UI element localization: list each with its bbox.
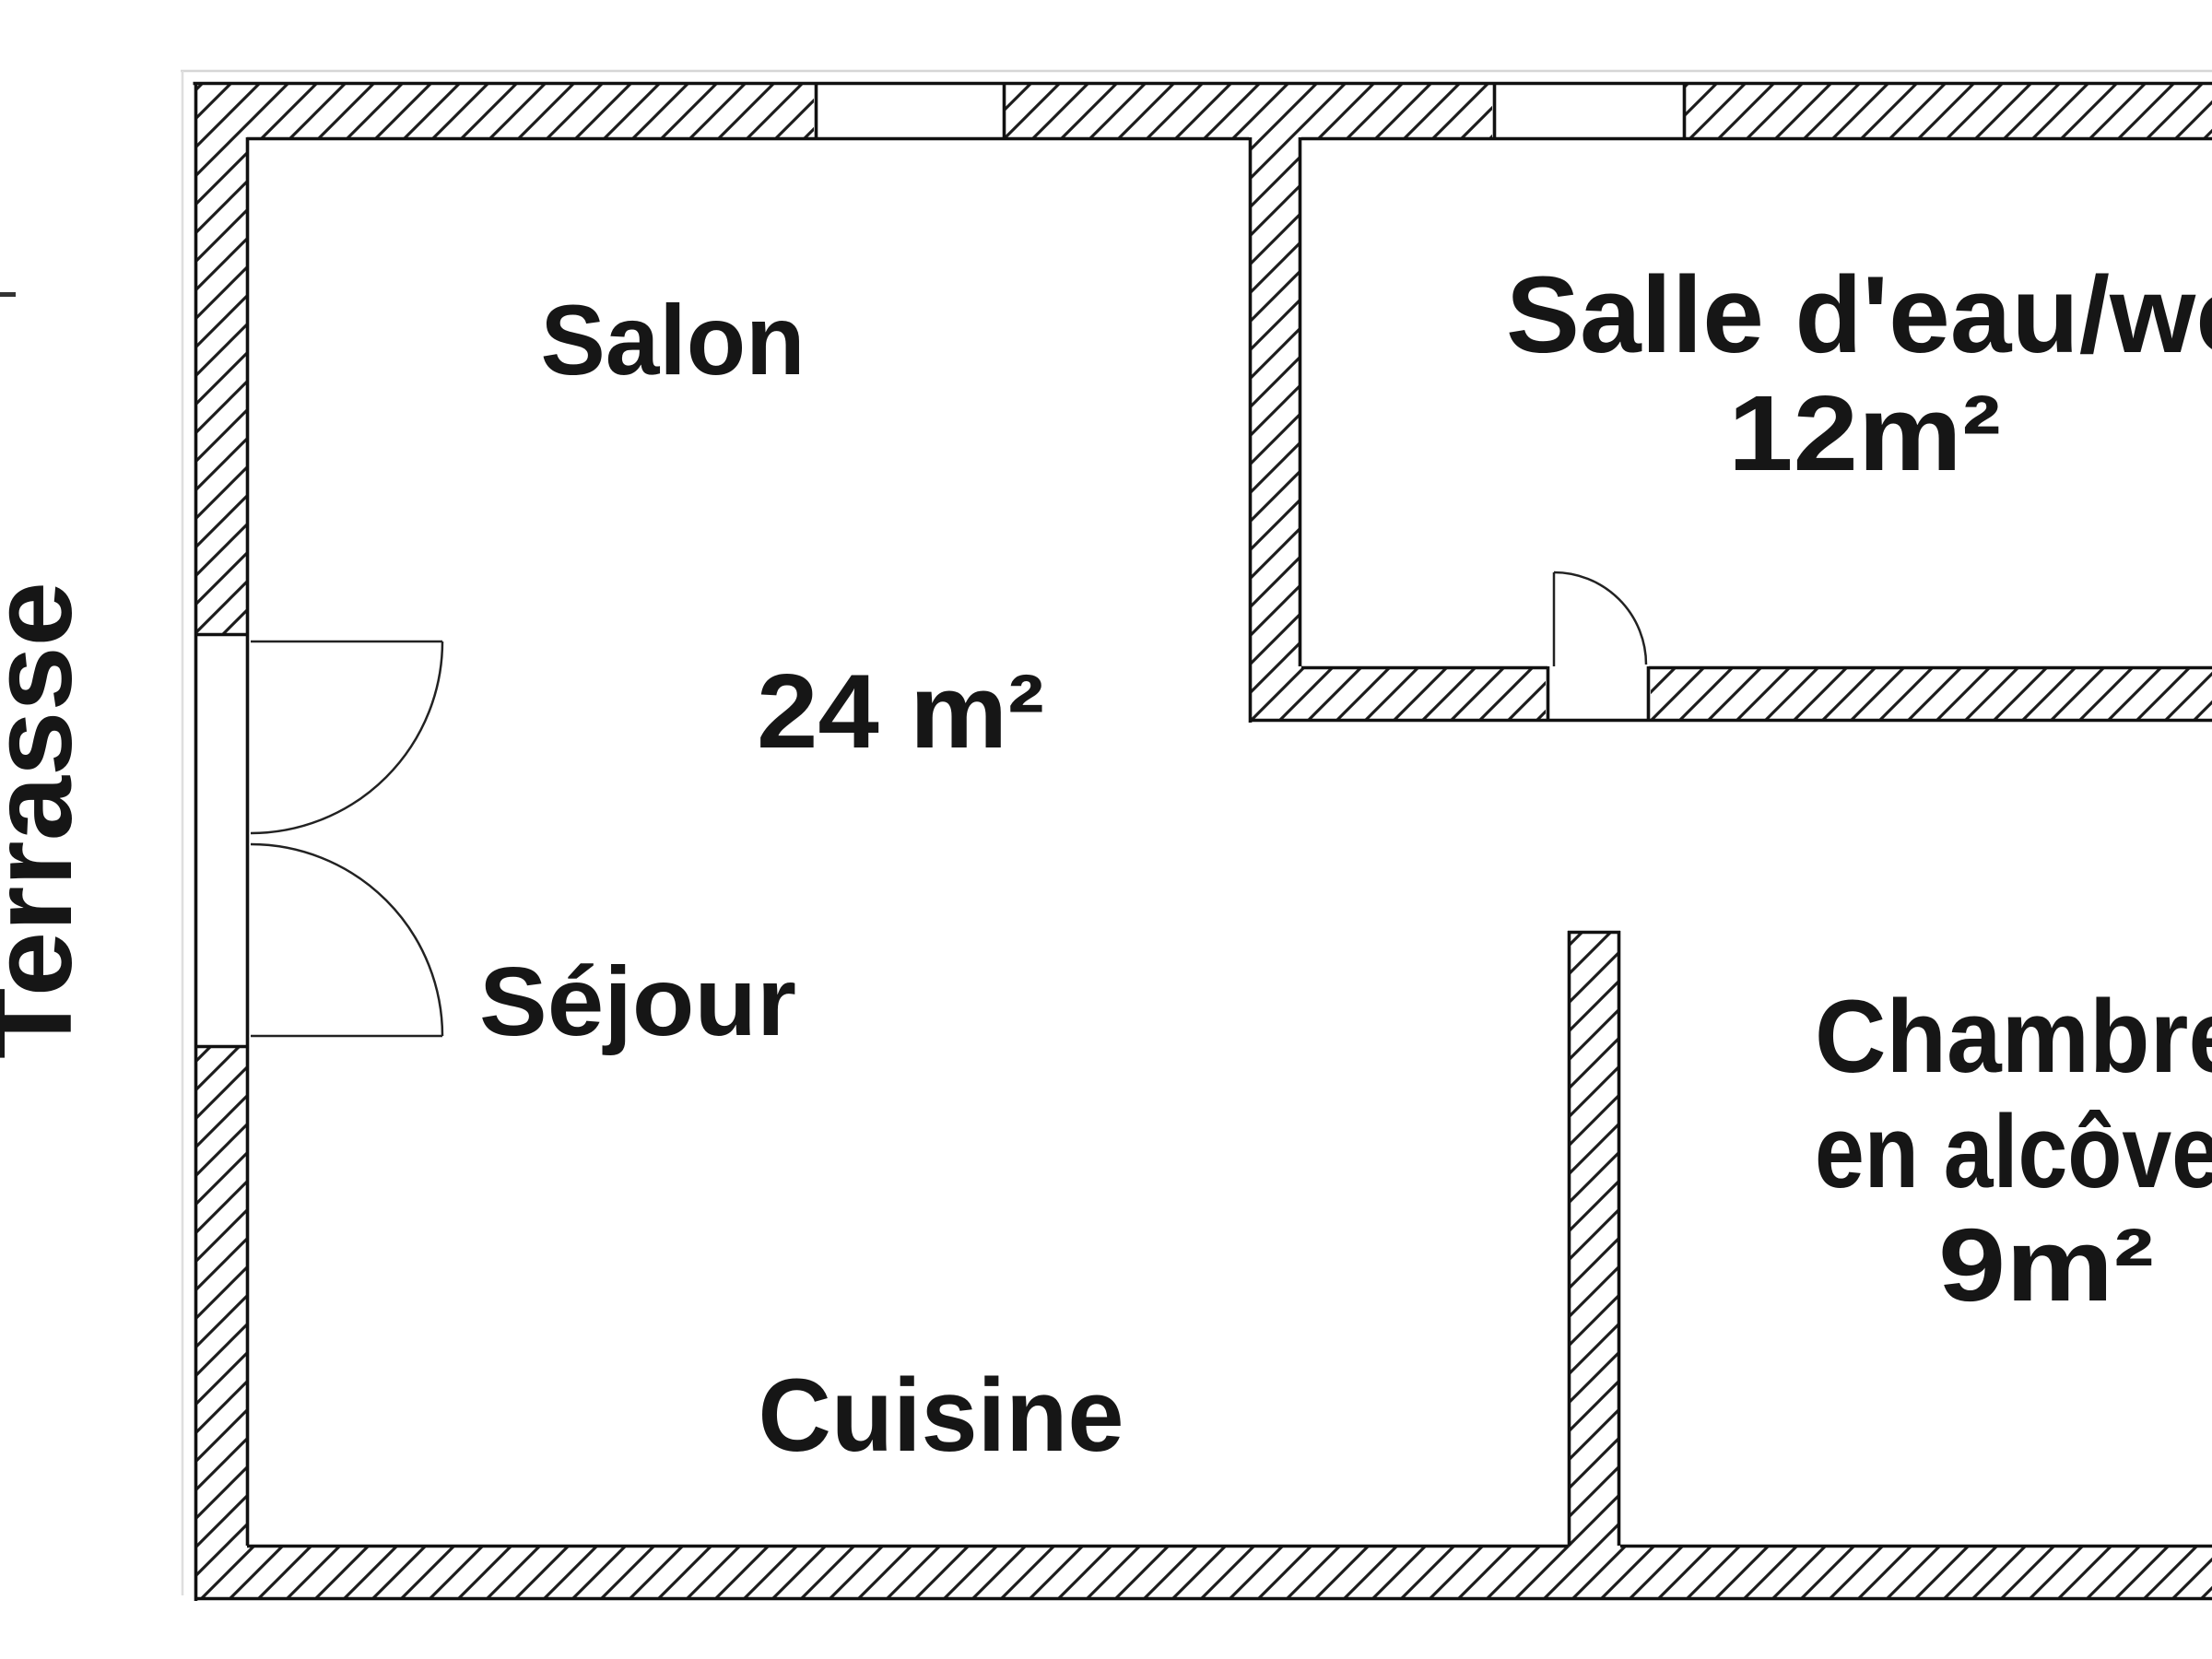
svg-text:Salle d'eau/wc: Salle d'eau/wc — [1506, 254, 2212, 376]
svg-text:24 m²: 24 m² — [757, 653, 1044, 771]
svg-text:Séjour: Séjour — [479, 947, 796, 1056]
svg-text:12m²: 12m² — [1728, 373, 2001, 493]
svg-text:Terrasse: Terrasse — [0, 582, 96, 1059]
svg-text:Salon: Salon — [541, 284, 806, 395]
svg-text:Cuisine: Cuisine — [759, 1358, 1124, 1473]
svg-text:9m²: 9m² — [1938, 1207, 2154, 1323]
svg-text:Chambre: Chambre — [1815, 979, 2212, 1094]
svg-text:en alcôve: en alcôve — [1815, 1094, 2212, 1209]
